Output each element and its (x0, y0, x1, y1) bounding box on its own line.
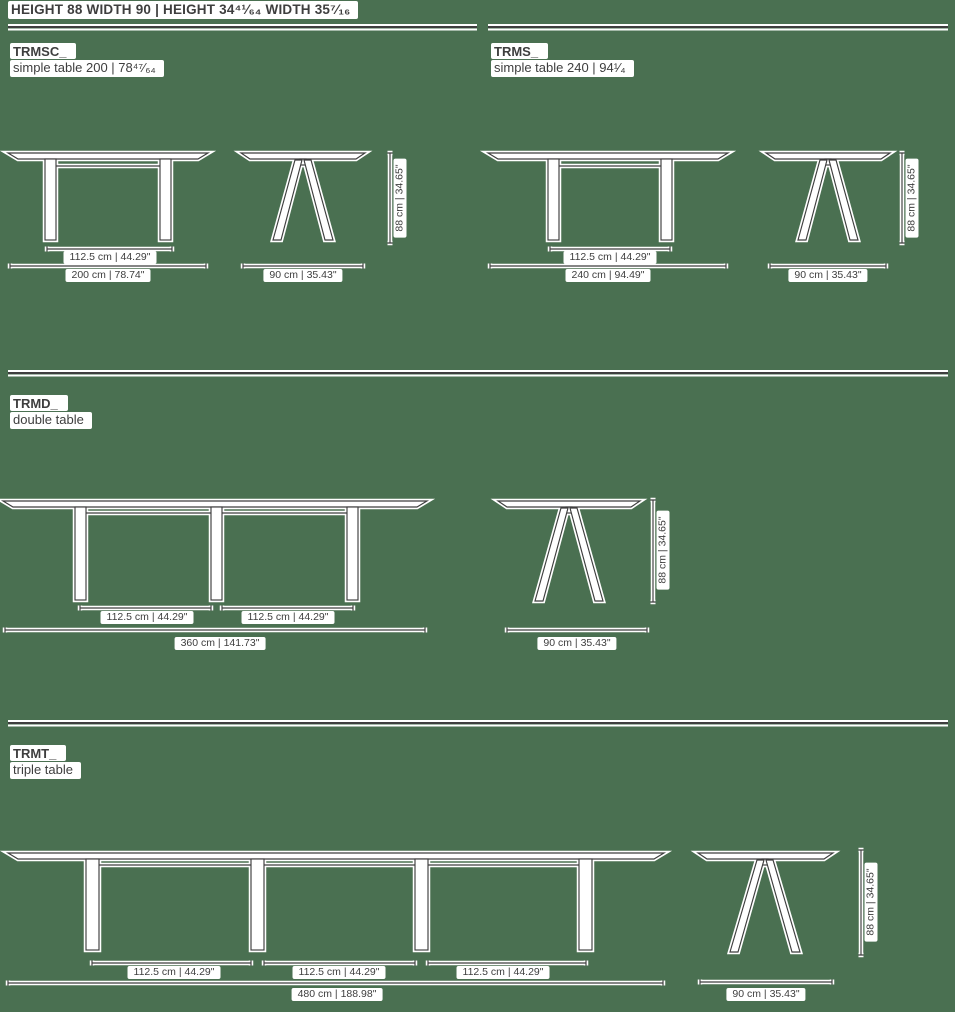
dim-height-label: 88 cm | 34.65" (906, 158, 919, 237)
dim-height-label: 88 cm | 34.65" (394, 158, 407, 237)
section-code: TRMS_ (491, 43, 548, 59)
dim-span-label: 112.5 cm | 44.29" (457, 966, 550, 979)
section-code: TRMD_ (10, 395, 68, 411)
section-divider (8, 372, 948, 374)
section-name: simple table 200 | 78⁴⁷⁄₆₄ (10, 60, 164, 77)
header-divider-right (488, 26, 948, 28)
dim-span-label: 112.5 cm | 44.29" (293, 966, 386, 979)
dim-depth-label: 90 cm | 35.43" (726, 988, 805, 1001)
section-name: triple table (10, 762, 81, 779)
dimension-drawings (0, 0, 955, 1012)
dim-span-label: 112.5 cm | 44.29" (564, 251, 657, 264)
section-name: simple table 240 | 94¹⁄₄ (491, 60, 634, 77)
section-divider (8, 722, 948, 724)
dim-depth-label: 90 cm | 35.43" (263, 269, 342, 282)
dim-total-label: 480 cm | 188.98" (292, 988, 383, 1001)
section-code: TRMT_ (10, 745, 66, 761)
dim-span-label: 112.5 cm | 44.29" (101, 611, 194, 624)
dim-span-label: 112.5 cm | 44.29" (128, 966, 221, 979)
dim-total-label: 240 cm | 94.49" (566, 269, 651, 282)
section-name: double table (10, 412, 92, 429)
spec-sheet: HEIGHT 88 WIDTH 90 | HEIGHT 34⁴¹⁄₆₄ WIDT… (0, 0, 955, 1012)
dim-height-label: 88 cm | 34.65" (865, 862, 878, 941)
section-code: TRMSC_ (10, 43, 76, 59)
dim-span-label: 112.5 cm | 44.29" (64, 251, 157, 264)
header-divider-left (8, 26, 477, 28)
dim-span-label: 112.5 cm | 44.29" (242, 611, 335, 624)
dim-depth-label: 90 cm | 35.43" (537, 637, 616, 650)
page-header-spec: HEIGHT 88 WIDTH 90 | HEIGHT 34⁴¹⁄₆₄ WIDT… (8, 1, 358, 19)
dim-height-label: 88 cm | 34.65" (657, 510, 670, 589)
dim-depth-label: 90 cm | 35.43" (788, 269, 867, 282)
dim-total-label: 200 cm | 78.74" (66, 269, 151, 282)
dim-total-label: 360 cm | 141.73" (175, 637, 266, 650)
